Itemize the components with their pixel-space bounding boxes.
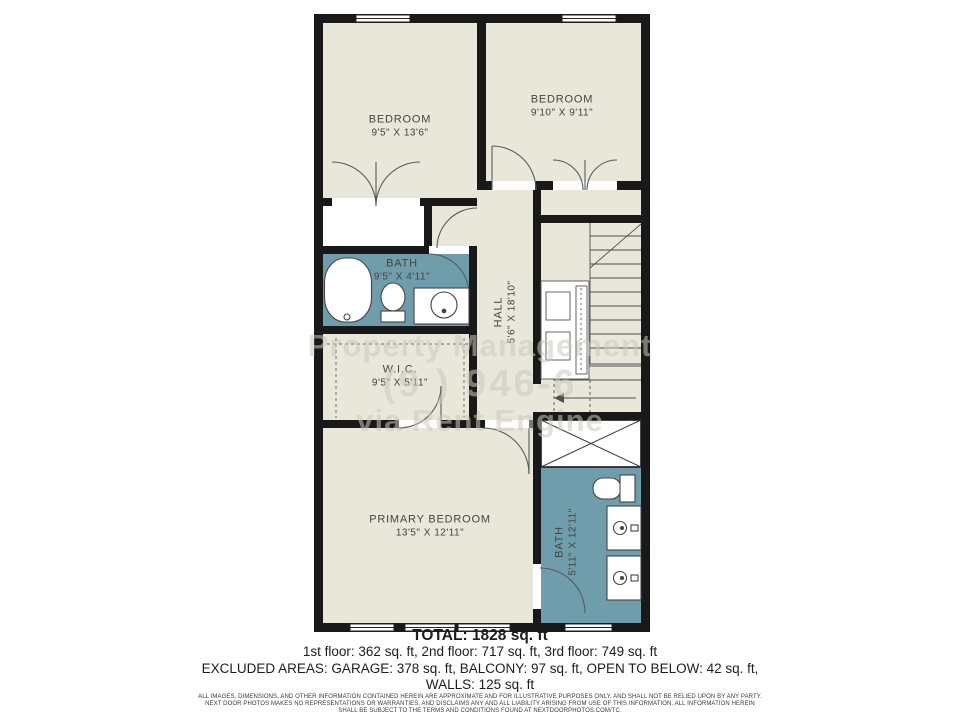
floorplan-drawing [314, 14, 650, 632]
room-label-bedroom-1: BEDROOM 9'5" X 13'6" [369, 114, 431, 139]
area-summary: TOTAL: 1828 sq. ft 1st floor: 362 sq. ft… [0, 627, 960, 694]
room-label-bath-1: BATH 9'5" X 4'11" [374, 258, 430, 283]
excluded-areas: EXCLUDED AREAS: GARAGE: 378 sq. ft, BALC… [0, 661, 960, 678]
floorplan: BEDROOM 9'5" X 13'6" BEDROOM 9'10" X 9'1… [314, 14, 650, 632]
floor-areas: 1st floor: 362 sq. ft, 2nd floor: 717 sq… [0, 644, 960, 661]
bathtub [325, 258, 372, 322]
toilet-bowl [593, 478, 621, 499]
room-label-wic: W.I.C. 9'5" X 5'11" [372, 364, 428, 389]
room-label-primary-bedroom: PRIMARY BEDROOM 13'5" X 12'11" [369, 514, 491, 539]
walls-area: WALLS: 125 sq. ft [0, 677, 960, 694]
vanity [414, 288, 469, 324]
total-area: TOTAL: 1828 sq. ft [0, 627, 960, 644]
toilet-tank [381, 311, 405, 322]
floorplan-page: BEDROOM 9'5" X 13'6" BEDROOM 9'10" X 9'1… [0, 0, 960, 720]
disclaimer-line-2: NEXT DOOR PHOTOS MAKES NO REPRESENTATION… [0, 701, 960, 708]
disclaimer-line-1: ALL IMAGES, DIMENSIONS, AND OTHER INFORM… [0, 694, 960, 701]
toilet-tank [620, 475, 635, 502]
room-label-bath-2: BATH 5'11" X 12'11" [554, 508, 579, 576]
disclaimer: ALL IMAGES, DIMENSIONS, AND OTHER INFORM… [0, 694, 960, 715]
utility-closet [541, 281, 589, 379]
toilet-bowl [381, 283, 405, 311]
room-label-hall: HALL 5'6" X 18'10" [493, 280, 518, 343]
disclaimer-line-3: SHALL BE SUBJECT TO THE TERMS AND CONDIT… [0, 708, 960, 715]
room-label-bedroom-2: BEDROOM 9'10" X 9'11" [531, 94, 593, 119]
